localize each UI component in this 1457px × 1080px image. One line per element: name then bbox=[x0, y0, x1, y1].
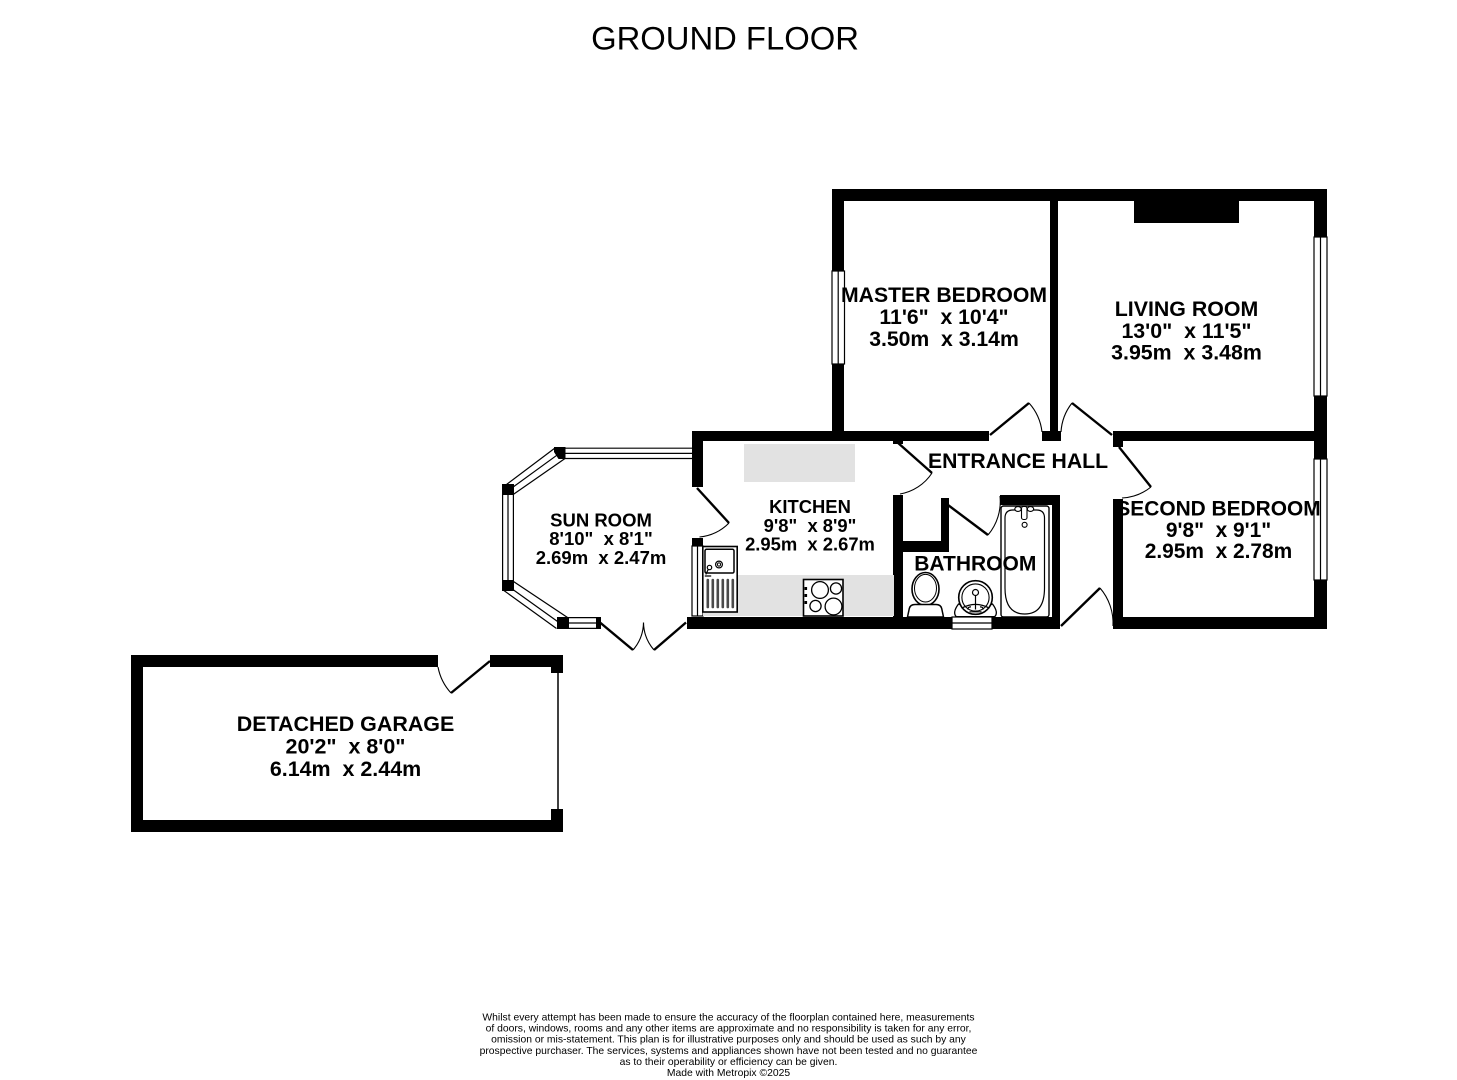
svg-text:13'0" x 11'5": 13'0" x 11'5" bbox=[1121, 319, 1251, 343]
svg-text:GROUND FLOOR: GROUND FLOOR bbox=[591, 20, 859, 57]
svg-text:MASTER BEDROOM: MASTER BEDROOM bbox=[841, 284, 1047, 307]
svg-text:prospective purchaser. The ser: prospective purchaser. The services, sys… bbox=[480, 1046, 978, 1057]
svg-text:9'8" x 9'1": 9'8" x 9'1" bbox=[1166, 519, 1271, 542]
svg-text:SECOND BEDROOM: SECOND BEDROOM bbox=[1116, 497, 1320, 520]
svg-text:LIVING ROOM: LIVING ROOM bbox=[1115, 297, 1258, 321]
svg-text:of doors, windows, rooms and a: of doors, windows, rooms and any other i… bbox=[486, 1024, 972, 1035]
svg-text:2.95m x 2.67m: 2.95m x 2.67m bbox=[745, 534, 875, 555]
svg-text:2.69m x 2.47m: 2.69m x 2.47m bbox=[536, 547, 667, 568]
svg-text:ENTRANCE HALL: ENTRANCE HALL bbox=[928, 450, 1108, 473]
svg-text:8'10" x 8'1": 8'10" x 8'1" bbox=[549, 528, 653, 549]
svg-text:6.14m x 2.44m: 6.14m x 2.44m bbox=[270, 757, 421, 781]
svg-text:11'6" x 10'4": 11'6" x 10'4" bbox=[879, 306, 1008, 329]
svg-text:as to their operability or eff: as to their operability or efficiency ca… bbox=[620, 1057, 838, 1068]
svg-text:Whilst every attempt has been: Whilst every attempt has been made to en… bbox=[482, 1013, 974, 1024]
svg-text:Made with Metropix ©2025: Made with Metropix ©2025 bbox=[667, 1068, 790, 1079]
svg-text:20'2" x 8'0": 20'2" x 8'0" bbox=[286, 735, 406, 759]
svg-text:3.95m x 3.48m: 3.95m x 3.48m bbox=[1111, 341, 1262, 365]
svg-text:BATHROOM: BATHROOM bbox=[914, 552, 1036, 575]
svg-text:DETACHED GARAGE: DETACHED GARAGE bbox=[237, 712, 455, 736]
svg-text:KITCHEN: KITCHEN bbox=[769, 496, 851, 517]
svg-text:omission or mis-statement. Thi: omission or mis-statement. This plan is … bbox=[491, 1035, 967, 1046]
svg-text:3.50m x 3.14m: 3.50m x 3.14m bbox=[869, 328, 1019, 351]
svg-text:2.95m x 2.78m: 2.95m x 2.78m bbox=[1145, 540, 1293, 563]
